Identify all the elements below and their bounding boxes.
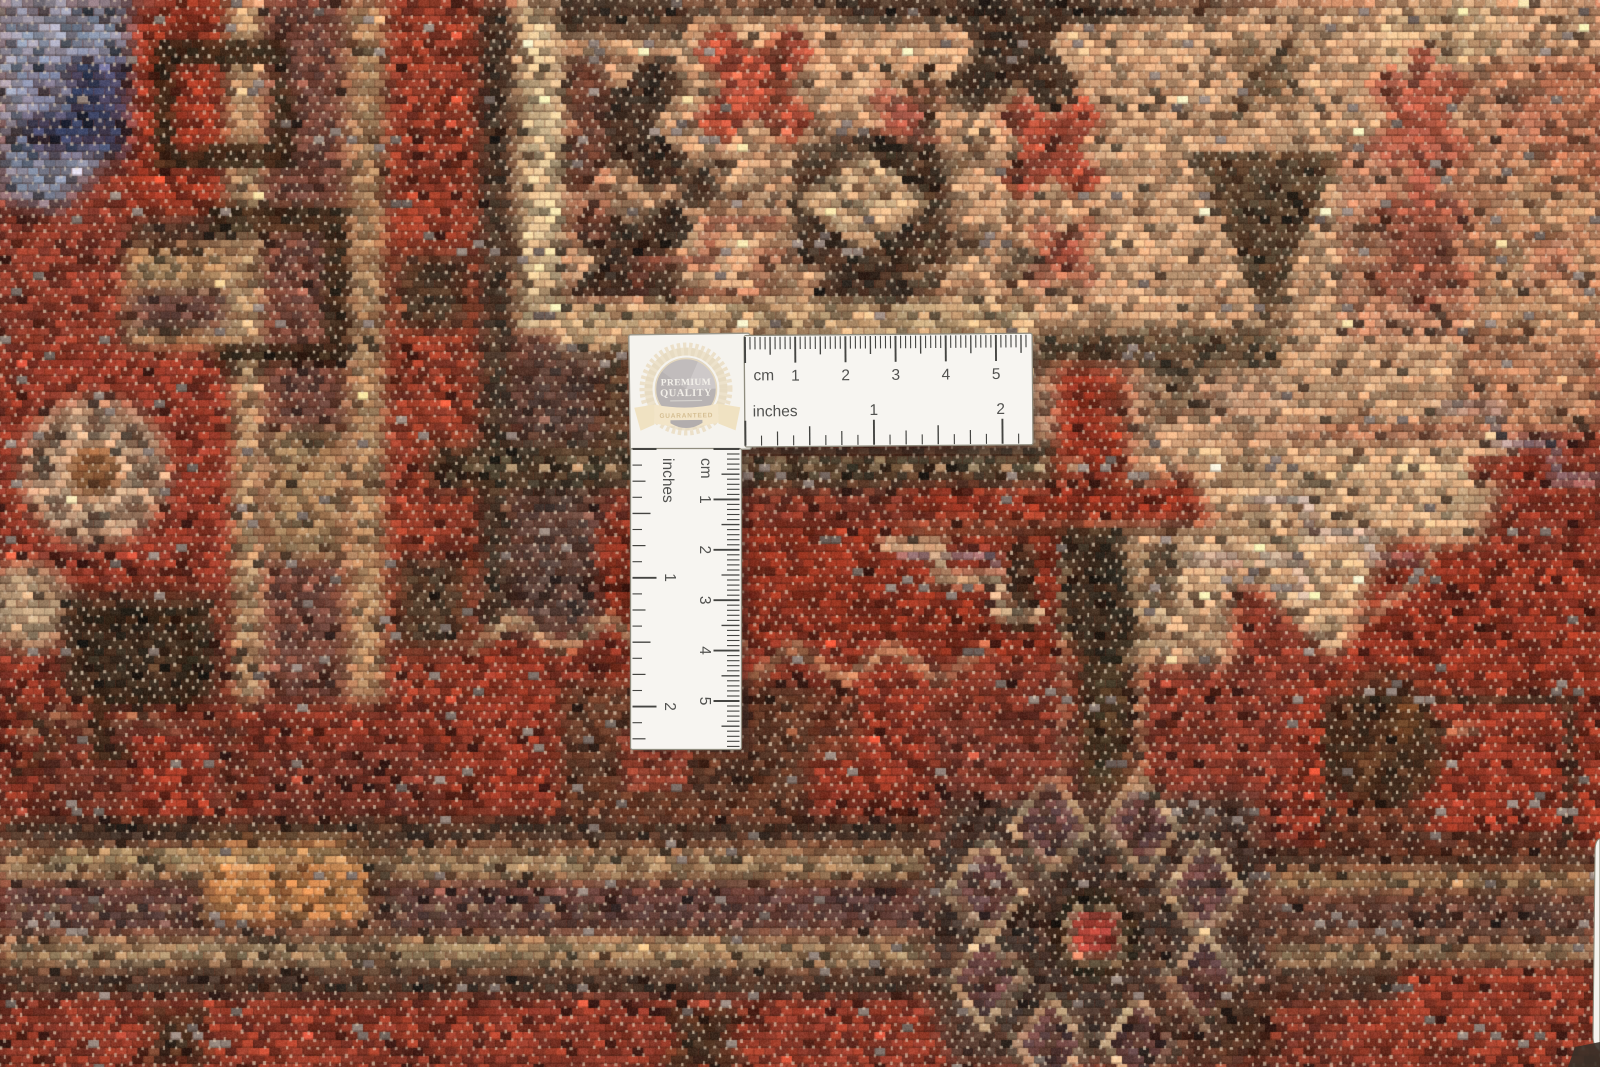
svg-text:2: 2 xyxy=(841,367,850,384)
svg-text:1: 1 xyxy=(661,573,678,582)
svg-text:3: 3 xyxy=(891,367,900,384)
svg-text:1: 1 xyxy=(696,495,713,504)
svg-text:GUARANTEED: GUARANTEED xyxy=(659,412,713,420)
svg-text:4: 4 xyxy=(696,646,713,655)
svg-text:3: 3 xyxy=(696,596,713,605)
svg-text:2: 2 xyxy=(661,702,678,711)
svg-text:1: 1 xyxy=(869,402,878,419)
svg-text:cm: cm xyxy=(753,367,774,384)
svg-text:1: 1 xyxy=(791,368,800,385)
svg-text:5: 5 xyxy=(696,697,713,706)
svg-text:2: 2 xyxy=(696,545,713,554)
svg-text:inches: inches xyxy=(753,403,798,420)
svg-text:4: 4 xyxy=(942,366,951,383)
svg-text:inches: inches xyxy=(659,458,676,503)
svg-text:5: 5 xyxy=(992,366,1001,383)
svg-text:cm: cm xyxy=(697,458,714,479)
svg-text:QUALITY: QUALITY xyxy=(660,388,712,400)
svg-text:PREMIUM: PREMIUM xyxy=(661,378,711,389)
svg-text:2: 2 xyxy=(996,401,1005,418)
